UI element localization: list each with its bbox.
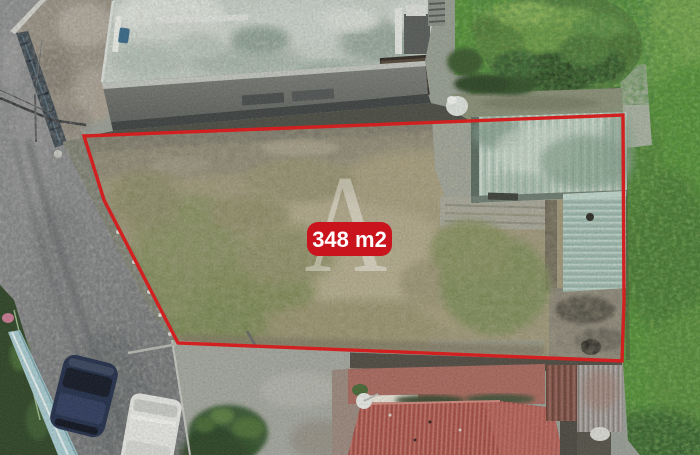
svg-text:348 m2: 348 m2 — [312, 227, 387, 252]
